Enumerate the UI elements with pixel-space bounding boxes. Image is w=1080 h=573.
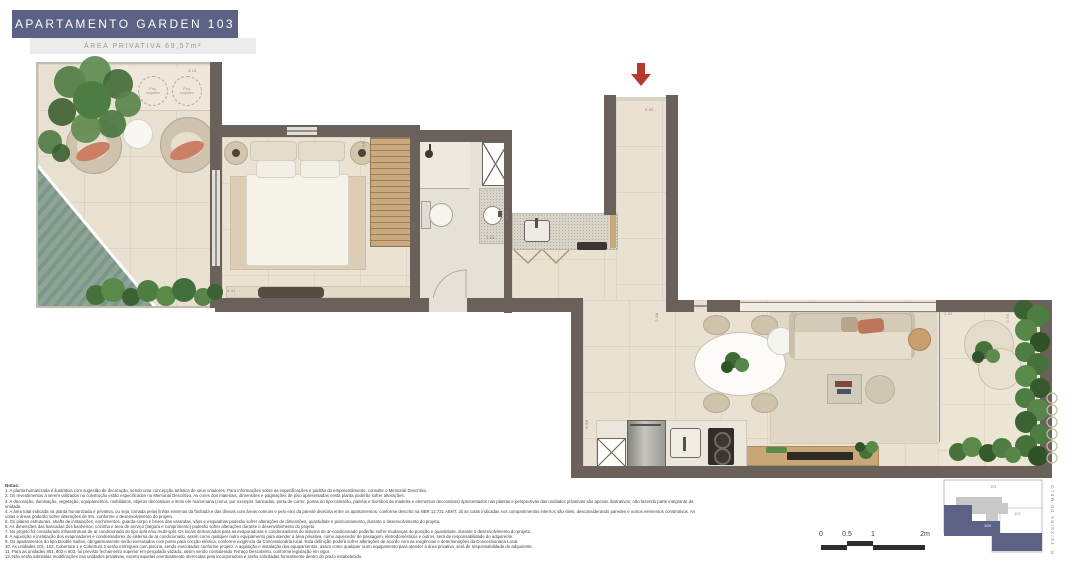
balcony-chair-plant (972, 341, 1000, 363)
street-label: R. TEIXEIRA DE MELO (1050, 480, 1055, 554)
page-title: APARTAMENTO GARDEN 103 (12, 10, 238, 38)
dim-balcony-depth: 2.79 (1006, 314, 1010, 323)
dim-living-left: 2.48 (655, 313, 659, 322)
dim-vanity: 1.63 (486, 236, 495, 240)
keyplan-unit-103: 103 (984, 524, 991, 528)
note-line: 4. A área total indicada na planta human… (5, 509, 705, 519)
keyplan (940, 478, 1052, 558)
palm-tree (38, 56, 141, 162)
floorplan-page: APARTAMENTO GARDEN 103 ÁREA PRIVATIVA 69… (0, 0, 1080, 573)
entry-arrow-icon (631, 63, 651, 86)
dim-balcony-width: 1.31 (944, 312, 953, 316)
scale-tick-2m: 2m (920, 531, 930, 538)
dim-bedroom: 3.41 (227, 289, 236, 293)
terrace-shrubs (86, 278, 223, 306)
note-line: 3. A decoração, iluminação, vegetação, e… (5, 499, 705, 509)
scale-tick-0: 0 (819, 531, 823, 538)
keyplan-unit-101: 101 (990, 485, 997, 489)
private-area-label: ÁREA PRIVATIVA 69,57m² (30, 38, 256, 54)
keyplan-unit-102: 102 (1014, 512, 1021, 516)
trellis-scallops (1047, 393, 1057, 463)
keyplan-unit-103-shape-b (992, 533, 1042, 551)
dim-entry: 0.92 (645, 108, 654, 112)
scale-bar-seg (821, 546, 847, 550)
dim-bathroom: 1.91 (412, 222, 416, 231)
note-line: 12. Não serão admitidas modificações nas… (5, 554, 705, 559)
console-plant (855, 441, 878, 459)
dim-terrace: 3.13 (188, 69, 197, 73)
dim-kitchen-run: 6.68 (585, 420, 589, 429)
scale-bar-seg (873, 546, 925, 550)
dining-centerpiece-plant (721, 352, 749, 373)
balcony-hedge (1014, 300, 1050, 466)
dim-closet: 2.99 (362, 142, 366, 151)
balcony-floor-plants (949, 437, 1021, 463)
scale-bar-seg (847, 541, 873, 545)
notes-block: Notas: 1. A planta humanizada é ilustrat… (5, 483, 705, 559)
scale-tick-05: 0.5 (842, 531, 852, 538)
scale-tick-1: 1 (871, 531, 875, 538)
dim-counter: 0.67 (505, 210, 509, 219)
